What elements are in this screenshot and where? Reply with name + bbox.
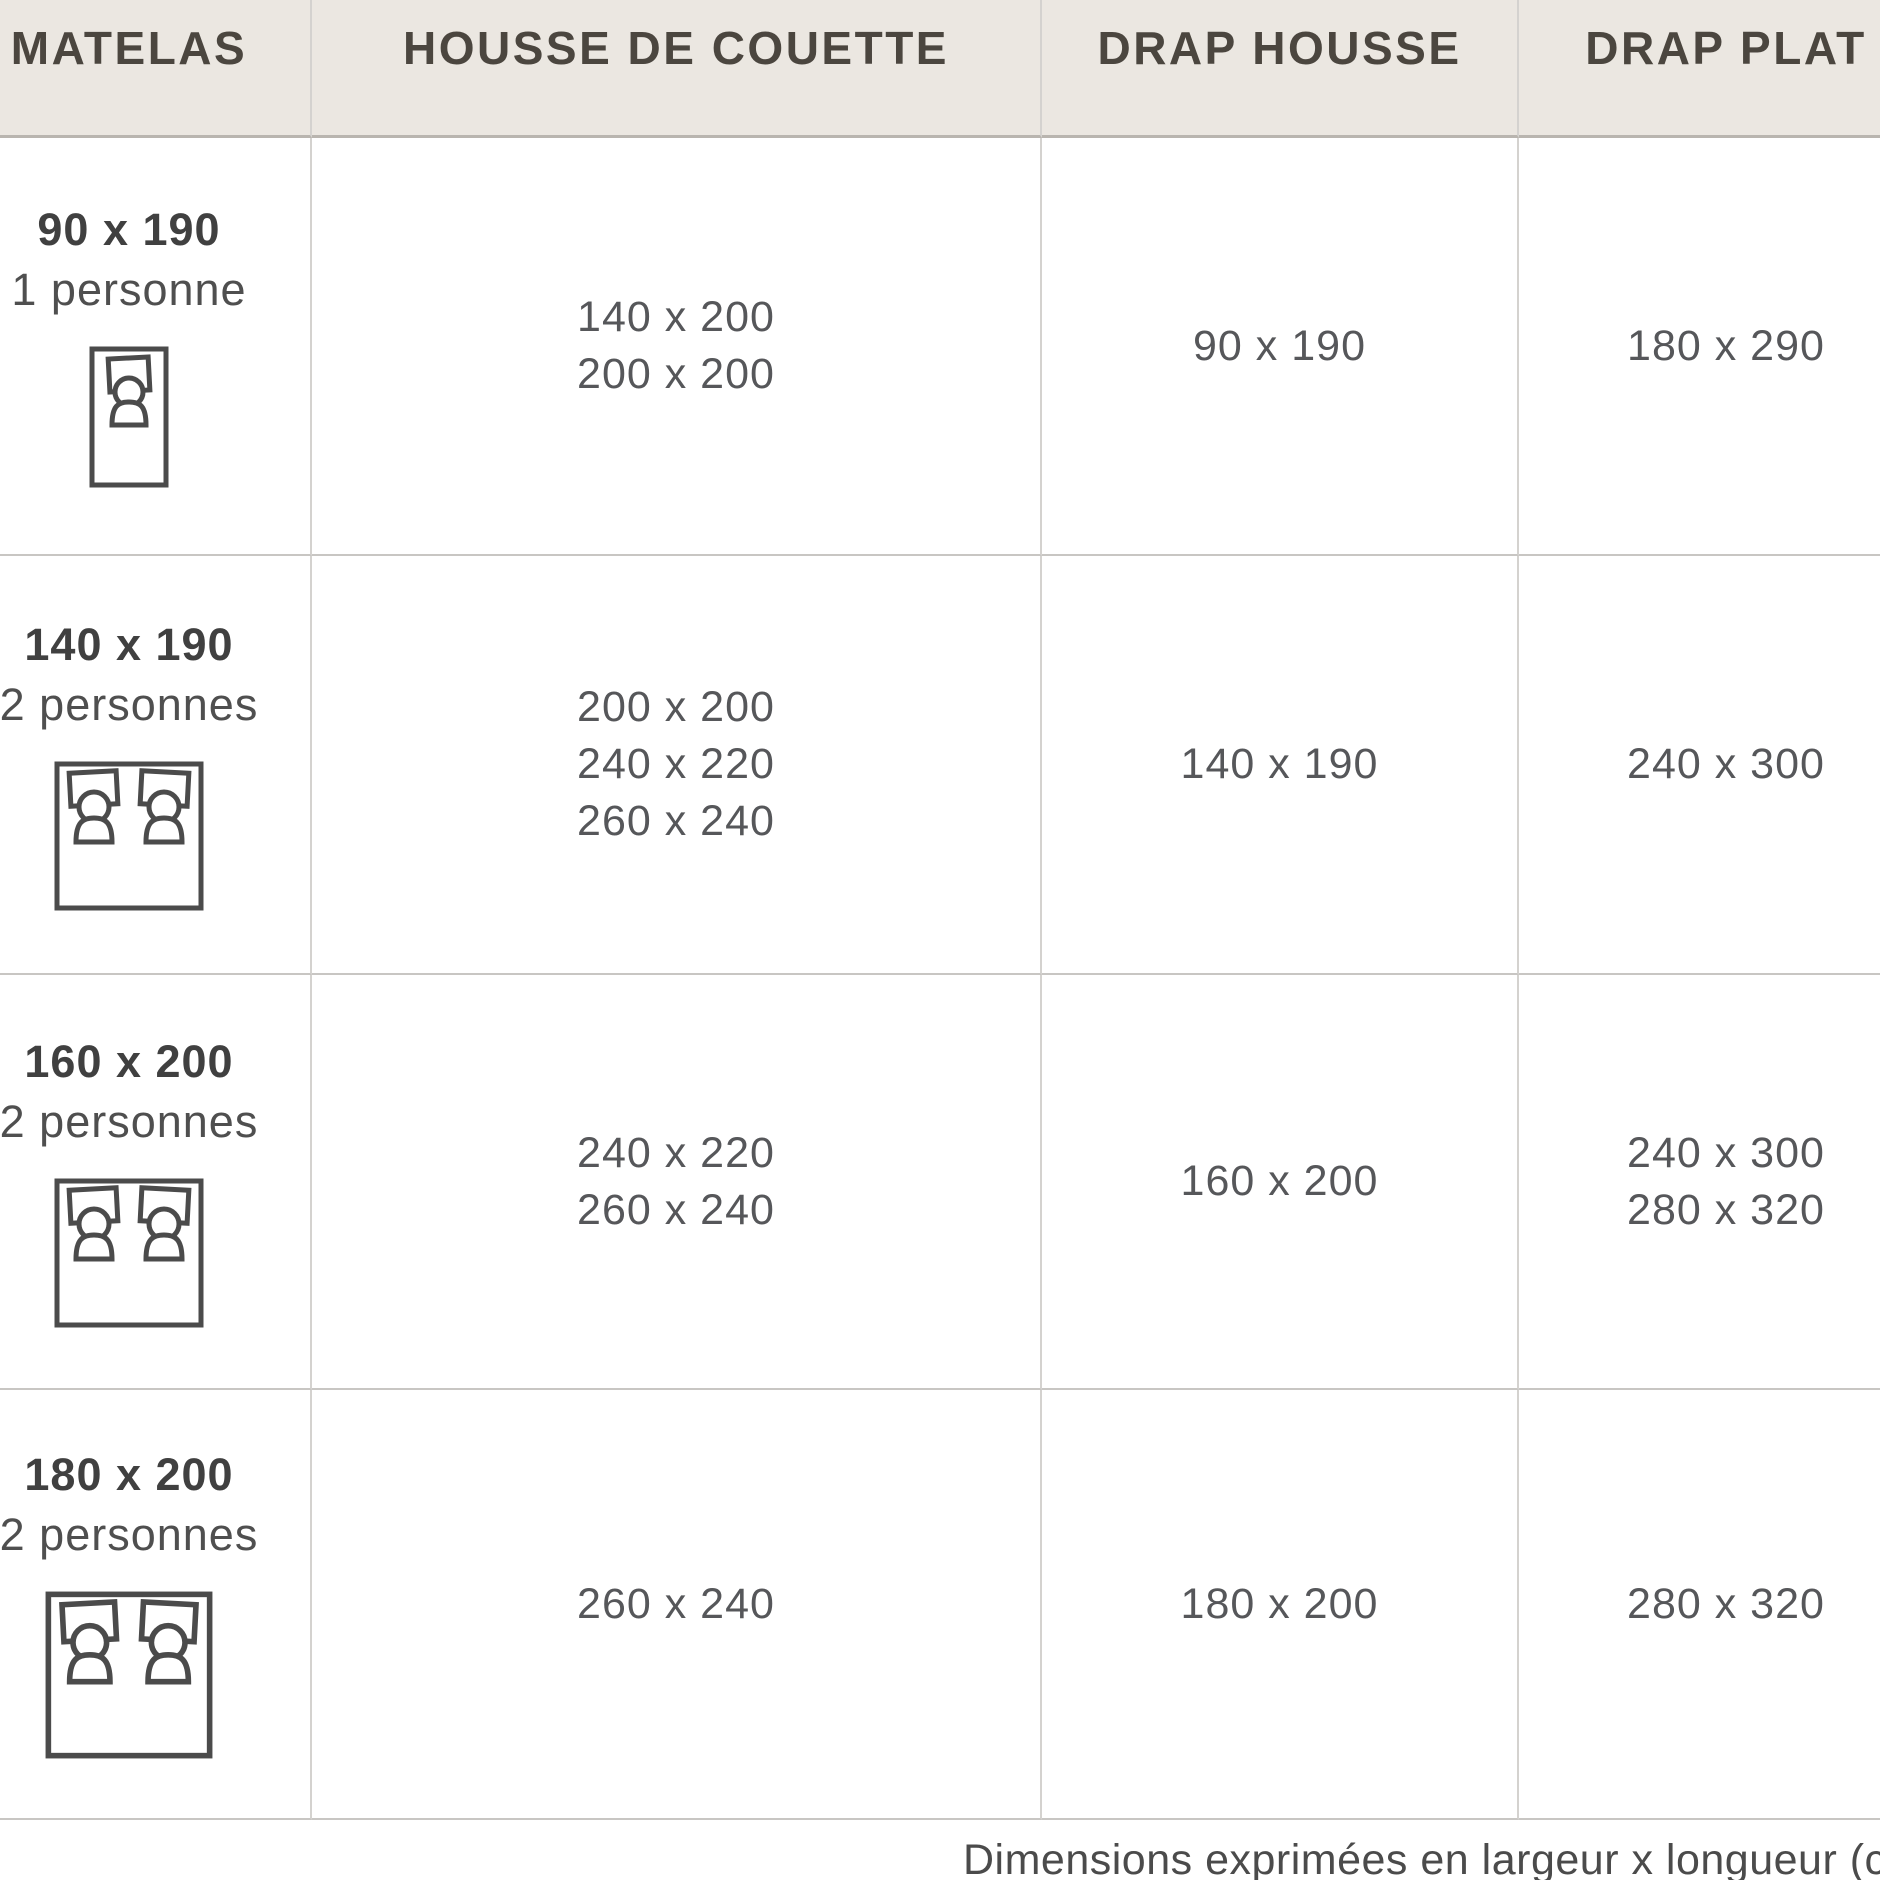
drap-plat-values: 240 x 300 280 x 320 [1519,975,1880,1390]
persons-label: 1 personne [11,264,246,316]
mattress-size-label: 140 x 190 [24,619,233,671]
size-table: MATELAS HOUSSE DE COUETTE DRAP HOUSSE DR… [0,0,1880,1820]
dimensions-footnote: Dimensions exprimées en largeur x longue… [963,1834,1880,1880]
mattress-cell: 140 x 190 2 personnes [0,556,312,975]
housse-de-couette-values: 260 x 240 [312,1390,1042,1820]
drap-plat-values: 240 x 300 [1519,556,1880,975]
table-wrap: MATELAS HOUSSE DE COUETTE DRAP HOUSSE DR… [0,0,1880,1820]
housse-de-couette-values: 140 x 200 200 x 200 [312,138,1042,556]
persons-label: 2 personnes [0,679,258,731]
double-bed-icon [54,1178,204,1328]
persons-label: 2 personnes [0,1509,258,1561]
header-cell-drap-housse: DRAP HOUSSE [1042,0,1519,138]
drap-housse-values: 90 x 190 [1042,138,1519,556]
bedding-size-chart: MATELAS HOUSSE DE COUETTE DRAP HOUSSE DR… [0,0,1880,1880]
drap-housse-values: 140 x 190 [1042,556,1519,975]
drap-housse-values: 180 x 200 [1042,1390,1519,1820]
mattress-size-label: 90 x 190 [37,204,220,256]
mattress-cell: 90 x 190 1 personne [0,138,312,556]
drap-plat-values: 180 x 290 [1519,138,1880,556]
housse-de-couette-values: 240 x 220 260 x 240 [312,975,1042,1390]
drap-plat-values: 280 x 320 [1519,1390,1880,1820]
mattress-cell: 160 x 200 2 personnes [0,975,312,1390]
double-bed-icon [45,1591,213,1759]
header-cell-housse-de-couette: HOUSSE DE COUETTE [312,0,1042,138]
header-cell-matelas: MATELAS [0,0,312,138]
double-bed-icon [54,761,204,911]
mattress-size-label: 160 x 200 [24,1036,233,1088]
header-cell-drap-plat: DRAP PLAT [1519,0,1880,138]
drap-housse-values: 160 x 200 [1042,975,1519,1390]
mattress-cell: 180 x 200 2 personnes [0,1390,312,1820]
single-bed-icon [89,346,169,488]
persons-label: 2 personnes [0,1096,258,1148]
housse-de-couette-values: 200 x 200 240 x 220 260 x 240 [312,556,1042,975]
mattress-size-label: 180 x 200 [24,1449,233,1501]
